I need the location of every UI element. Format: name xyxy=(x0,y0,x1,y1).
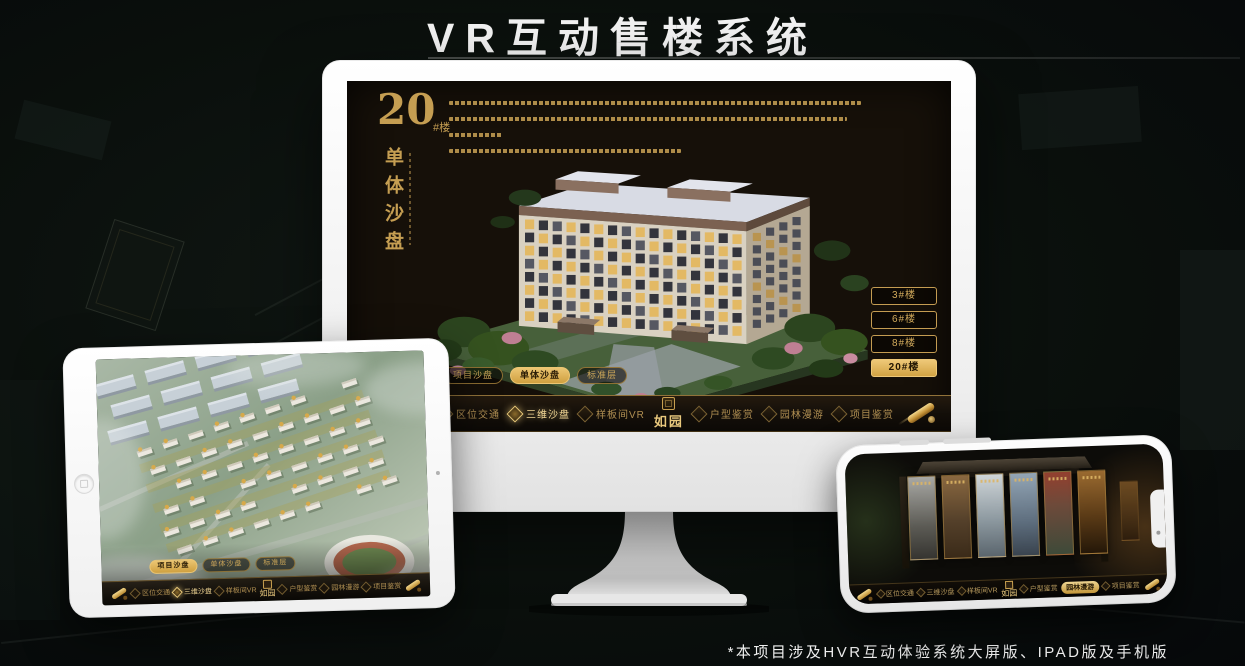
diamond-icon xyxy=(956,586,966,596)
vr-scene-card[interactable] xyxy=(907,475,938,560)
nav-item-3d-sandbox[interactable]: 三维沙盘 xyxy=(509,406,570,421)
vr-scene-card[interactable] xyxy=(1043,471,1074,556)
vr-scene-gallery xyxy=(907,470,1108,561)
title-divider xyxy=(428,57,1240,59)
diamond-icon xyxy=(760,405,777,422)
brand-logo[interactable]: 如园 xyxy=(1001,581,1018,599)
diamond-icon xyxy=(875,589,885,599)
floor-button-20[interactable]: 20#楼 xyxy=(871,359,937,377)
scroll-icon[interactable] xyxy=(110,586,128,600)
nav-label: 项目鉴赏 xyxy=(850,406,894,421)
nav-item-3d-sandbox[interactable]: 三维沙盘 xyxy=(173,586,212,597)
block-number: 20 xyxy=(377,89,435,131)
diamond-icon xyxy=(507,405,524,422)
camera-icon xyxy=(436,471,440,475)
background-building xyxy=(1018,86,1142,150)
phone-mockup: 区位交通 三维沙盘 样板间VR 如园 户型鉴赏 园林漫游 项目鉴赏 xyxy=(835,434,1177,614)
lit-doorway xyxy=(1120,480,1140,541)
power-button[interactable] xyxy=(943,437,991,444)
phone-notch xyxy=(1150,489,1166,547)
background-sign xyxy=(85,219,184,331)
scroll-icon[interactable] xyxy=(404,578,422,592)
seal-icon xyxy=(263,580,272,589)
nav-label: 样板间VR xyxy=(596,406,645,421)
nav-label: 三维沙盘 xyxy=(526,406,570,421)
tablet-mockup: 项目沙盘 单体沙盘 标准层 区位交通 三维沙盘 样板间VR 如园 户型鉴赏 园林… xyxy=(62,338,455,619)
nav-item-showroom-vr[interactable]: 样板间VR xyxy=(958,585,998,596)
diamond-icon xyxy=(129,587,140,598)
scroll-icon[interactable] xyxy=(855,587,873,602)
background-map xyxy=(0,380,60,620)
nav-item-floorplan[interactable]: 户型鉴赏 xyxy=(693,406,754,421)
floor-button-6[interactable]: 6#楼 xyxy=(871,311,937,329)
tablet-screen: 项目沙盘 单体沙盘 标准层 区位交通 三维沙盘 样板间VR 如园 户型鉴赏 园林… xyxy=(96,350,431,605)
diamond-icon xyxy=(319,582,330,593)
nav-label: 区位交通 xyxy=(456,406,500,421)
scroll-icon[interactable] xyxy=(903,402,937,426)
nav-item-location[interactable]: 区位交通 xyxy=(877,588,914,599)
background-building xyxy=(14,100,111,161)
volume-button[interactable] xyxy=(899,440,929,446)
nav-item-3d-sandbox[interactable]: 三维沙盘 xyxy=(917,586,954,597)
nav-item-floorplan[interactable]: 户型鉴赏 xyxy=(1020,583,1057,594)
nav-item-floorplan[interactable]: 户型鉴赏 xyxy=(278,583,317,594)
floor-selector: 3#楼 6#楼 8#楼 20#楼 xyxy=(871,287,937,383)
page-title: VR互动售楼系统 xyxy=(0,4,1245,64)
diamond-icon xyxy=(1019,584,1029,594)
diamond-icon xyxy=(360,581,371,592)
nav-label: 户型鉴赏 xyxy=(710,406,754,421)
seal-icon xyxy=(662,397,675,410)
card-caption xyxy=(1048,477,1066,481)
vr-scene-card[interactable] xyxy=(941,474,972,559)
vr-scene-card[interactable] xyxy=(1077,470,1108,555)
nav-item-garden-tour[interactable]: 园林漫游 xyxy=(1061,580,1099,593)
vr-scene-card[interactable] xyxy=(1009,472,1040,557)
tab-single-sandbox[interactable]: 单体沙盘 xyxy=(202,557,250,572)
tab-project-sandbox[interactable]: 项目沙盘 xyxy=(149,559,197,574)
floor-button-3[interactable]: 3#楼 xyxy=(871,287,937,305)
tab-standard-floor[interactable]: 标准层 xyxy=(577,367,627,384)
sandbox-tabs: 项目沙盘 单体沙盘 标准层 xyxy=(443,367,627,384)
brand-name: 如园 xyxy=(654,411,684,430)
diamond-icon xyxy=(690,405,707,422)
diamond-icon xyxy=(1101,581,1111,591)
diamond-icon xyxy=(577,405,594,422)
nav-item-showroom-vr[interactable]: 样板间VR xyxy=(579,406,645,421)
nav-label: 园林漫游 xyxy=(780,406,824,421)
scroll-icon[interactable] xyxy=(1143,577,1161,592)
card-caption xyxy=(980,479,998,483)
background-trees xyxy=(1180,250,1245,450)
nav-item-project-gallery[interactable]: 项目鉴赏 xyxy=(1103,580,1140,591)
nav-item-project-gallery[interactable]: 项目鉴赏 xyxy=(833,406,894,421)
brand-logo[interactable]: 如园 xyxy=(259,580,276,599)
footnote: *本项目涉及HVR互动体验系统大屏版、IPAD版及手机版 xyxy=(728,641,1169,662)
vr-scene-card[interactable] xyxy=(975,473,1006,558)
card-caption xyxy=(1082,476,1100,480)
card-caption xyxy=(912,482,930,486)
diamond-icon xyxy=(830,405,847,422)
tab-standard-floor[interactable]: 标准层 xyxy=(255,556,295,571)
promo-canvas: VR互动售楼系统 20 #楼 单体沙盘 xyxy=(0,0,1245,666)
card-caption xyxy=(946,480,964,484)
tab-single-sandbox[interactable]: 单体沙盘 xyxy=(510,367,570,384)
diamond-icon xyxy=(277,583,288,594)
diamond-icon xyxy=(213,585,224,596)
diamond-icon xyxy=(916,588,926,598)
tab-project-sandbox[interactable]: 项目沙盘 xyxy=(443,367,503,384)
nav-item-garden-tour[interactable]: 园林漫游 xyxy=(763,406,824,421)
diamond-icon xyxy=(171,586,182,597)
description-line xyxy=(449,117,847,121)
card-caption xyxy=(1014,478,1032,482)
nav-item-garden-tour[interactable]: 园林漫游 xyxy=(320,582,359,593)
nav-item-project-gallery[interactable]: 项目鉴赏 xyxy=(362,581,401,592)
monitor-stand xyxy=(529,510,769,616)
description-line xyxy=(449,101,861,105)
home-button[interactable] xyxy=(74,474,95,495)
section-title-vertical: 单体沙盘 xyxy=(379,147,406,259)
phone-screen: 区位交通 三维沙盘 样板间VR 如园 户型鉴赏 园林漫游 项目鉴赏 xyxy=(844,443,1167,604)
brand-logo[interactable]: 如园 xyxy=(654,397,684,430)
floor-button-8[interactable]: 8#楼 xyxy=(871,335,937,353)
nav-item-location[interactable]: 区位交通 xyxy=(131,587,170,598)
nav-item-showroom-vr[interactable]: 样板间VR xyxy=(215,585,257,596)
